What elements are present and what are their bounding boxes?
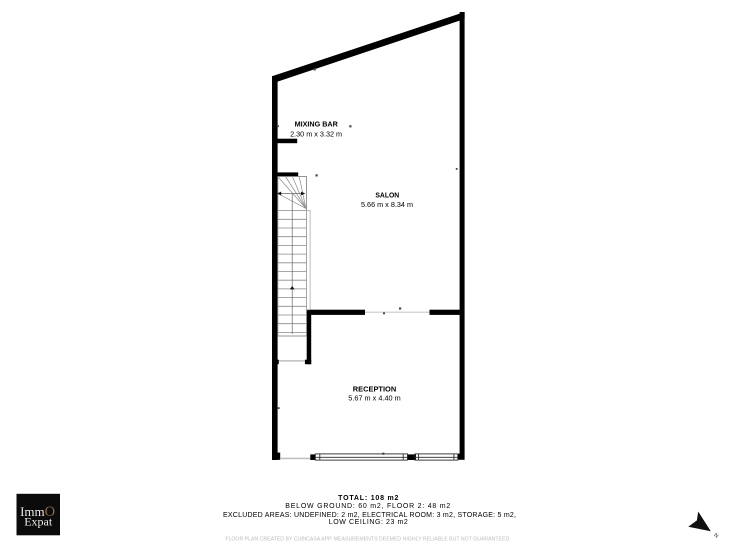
svg-text:5.66 m x 8.34 m: 5.66 m x 8.34 m: [361, 200, 413, 209]
svg-text:2.30 m x 3.32 m: 2.30 m x 3.32 m: [290, 129, 342, 138]
svg-text:LOW CEILING: 23 m2: LOW CEILING: 23 m2: [329, 519, 408, 526]
svg-text:MIXING BAR: MIXING BAR: [295, 120, 339, 129]
svg-text:FLOOR PLAN CREATED BY CUBICASA: FLOOR PLAN CREATED BY CUBICASA APP. MEAS…: [225, 536, 510, 542]
svg-text:5.67 m x 4.40 m: 5.67 m x 4.40 m: [348, 394, 400, 403]
svg-text:SALON: SALON: [375, 191, 399, 200]
svg-text:TOTAL: 108 m2: TOTAL: 108 m2: [338, 495, 398, 502]
svg-text:EXCLUDED AREAS: UNDEFINED: 2 m: EXCLUDED AREAS: UNDEFINED: 2 m2, ELECTRI…: [223, 512, 516, 519]
svg-text:Expat: Expat: [24, 514, 53, 528]
svg-text:BELOW GROUND: 60 m2, FLOOR 2:: BELOW GROUND: 60 m2, FLOOR 2: 48 m2: [285, 503, 450, 510]
svg-text:RECEPTION: RECEPTION: [353, 385, 396, 394]
